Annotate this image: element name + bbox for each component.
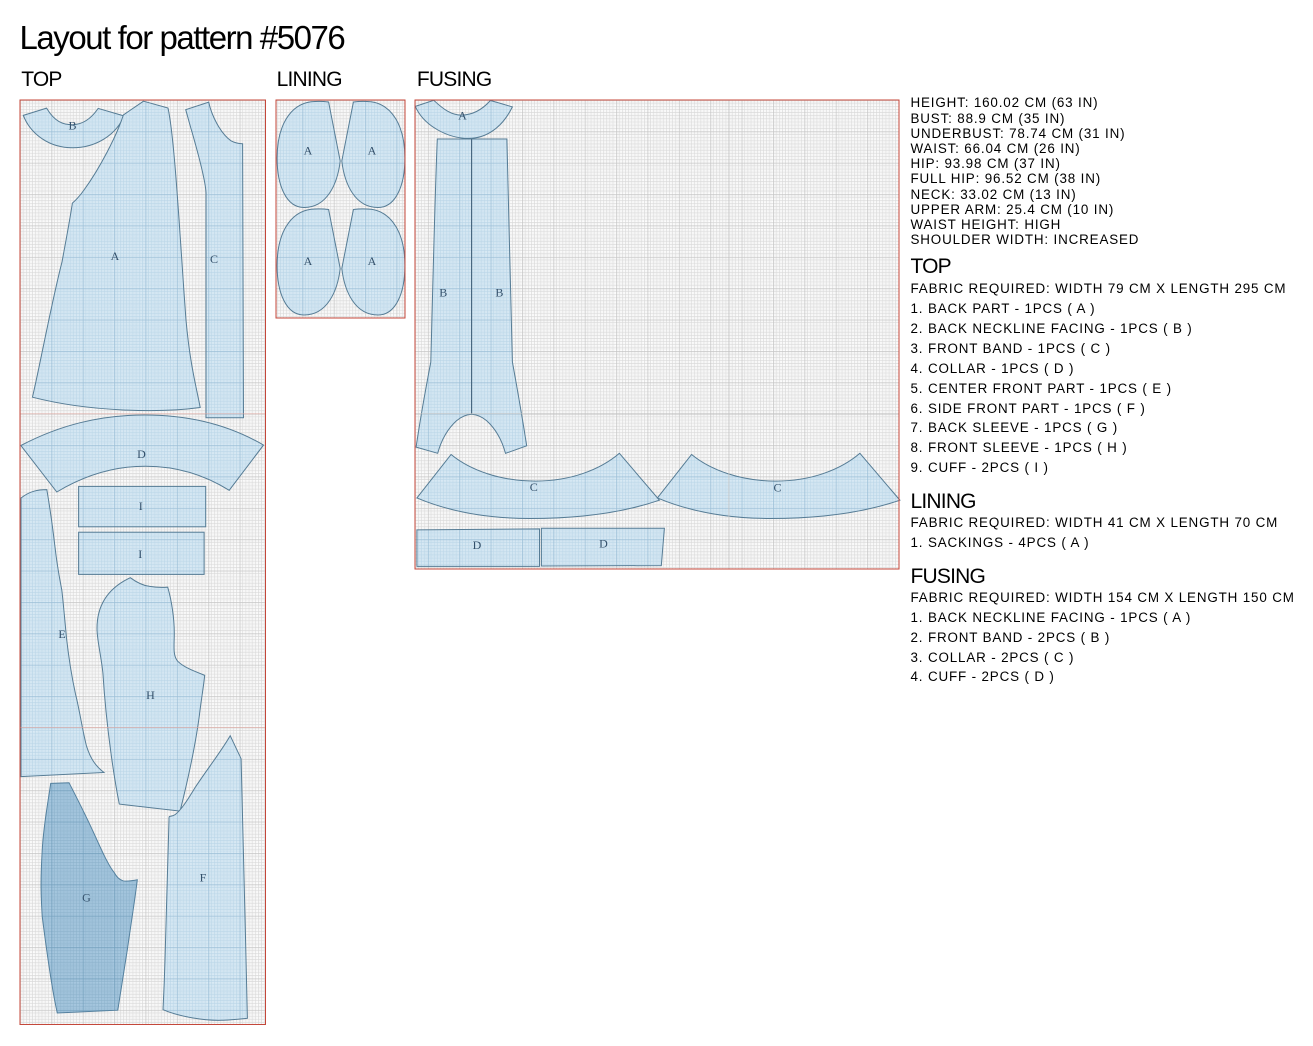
svg-text:A: A (368, 254, 377, 268)
svg-text:A: A (458, 108, 467, 122)
svg-text:A: A (368, 144, 377, 158)
svg-text:C: C (210, 252, 218, 266)
svg-text:I: I (138, 547, 142, 561)
svg-text:B: B (68, 119, 76, 133)
svg-text:H: H (146, 688, 155, 702)
svg-text:D: D (137, 447, 146, 461)
svg-text:D: D (473, 538, 482, 552)
svg-text:A: A (304, 144, 313, 158)
svg-text:E: E (58, 627, 65, 641)
svg-text:F: F (200, 871, 207, 885)
svg-text:A: A (111, 249, 120, 263)
svg-text:G: G (82, 891, 91, 905)
svg-text:C: C (773, 481, 781, 495)
svg-text:C: C (530, 480, 538, 494)
svg-text:I: I (139, 499, 143, 513)
svg-text:D: D (599, 537, 608, 551)
svg-text:B: B (495, 286, 503, 300)
svg-text:A: A (304, 254, 313, 268)
svg-text:B: B (439, 286, 447, 300)
